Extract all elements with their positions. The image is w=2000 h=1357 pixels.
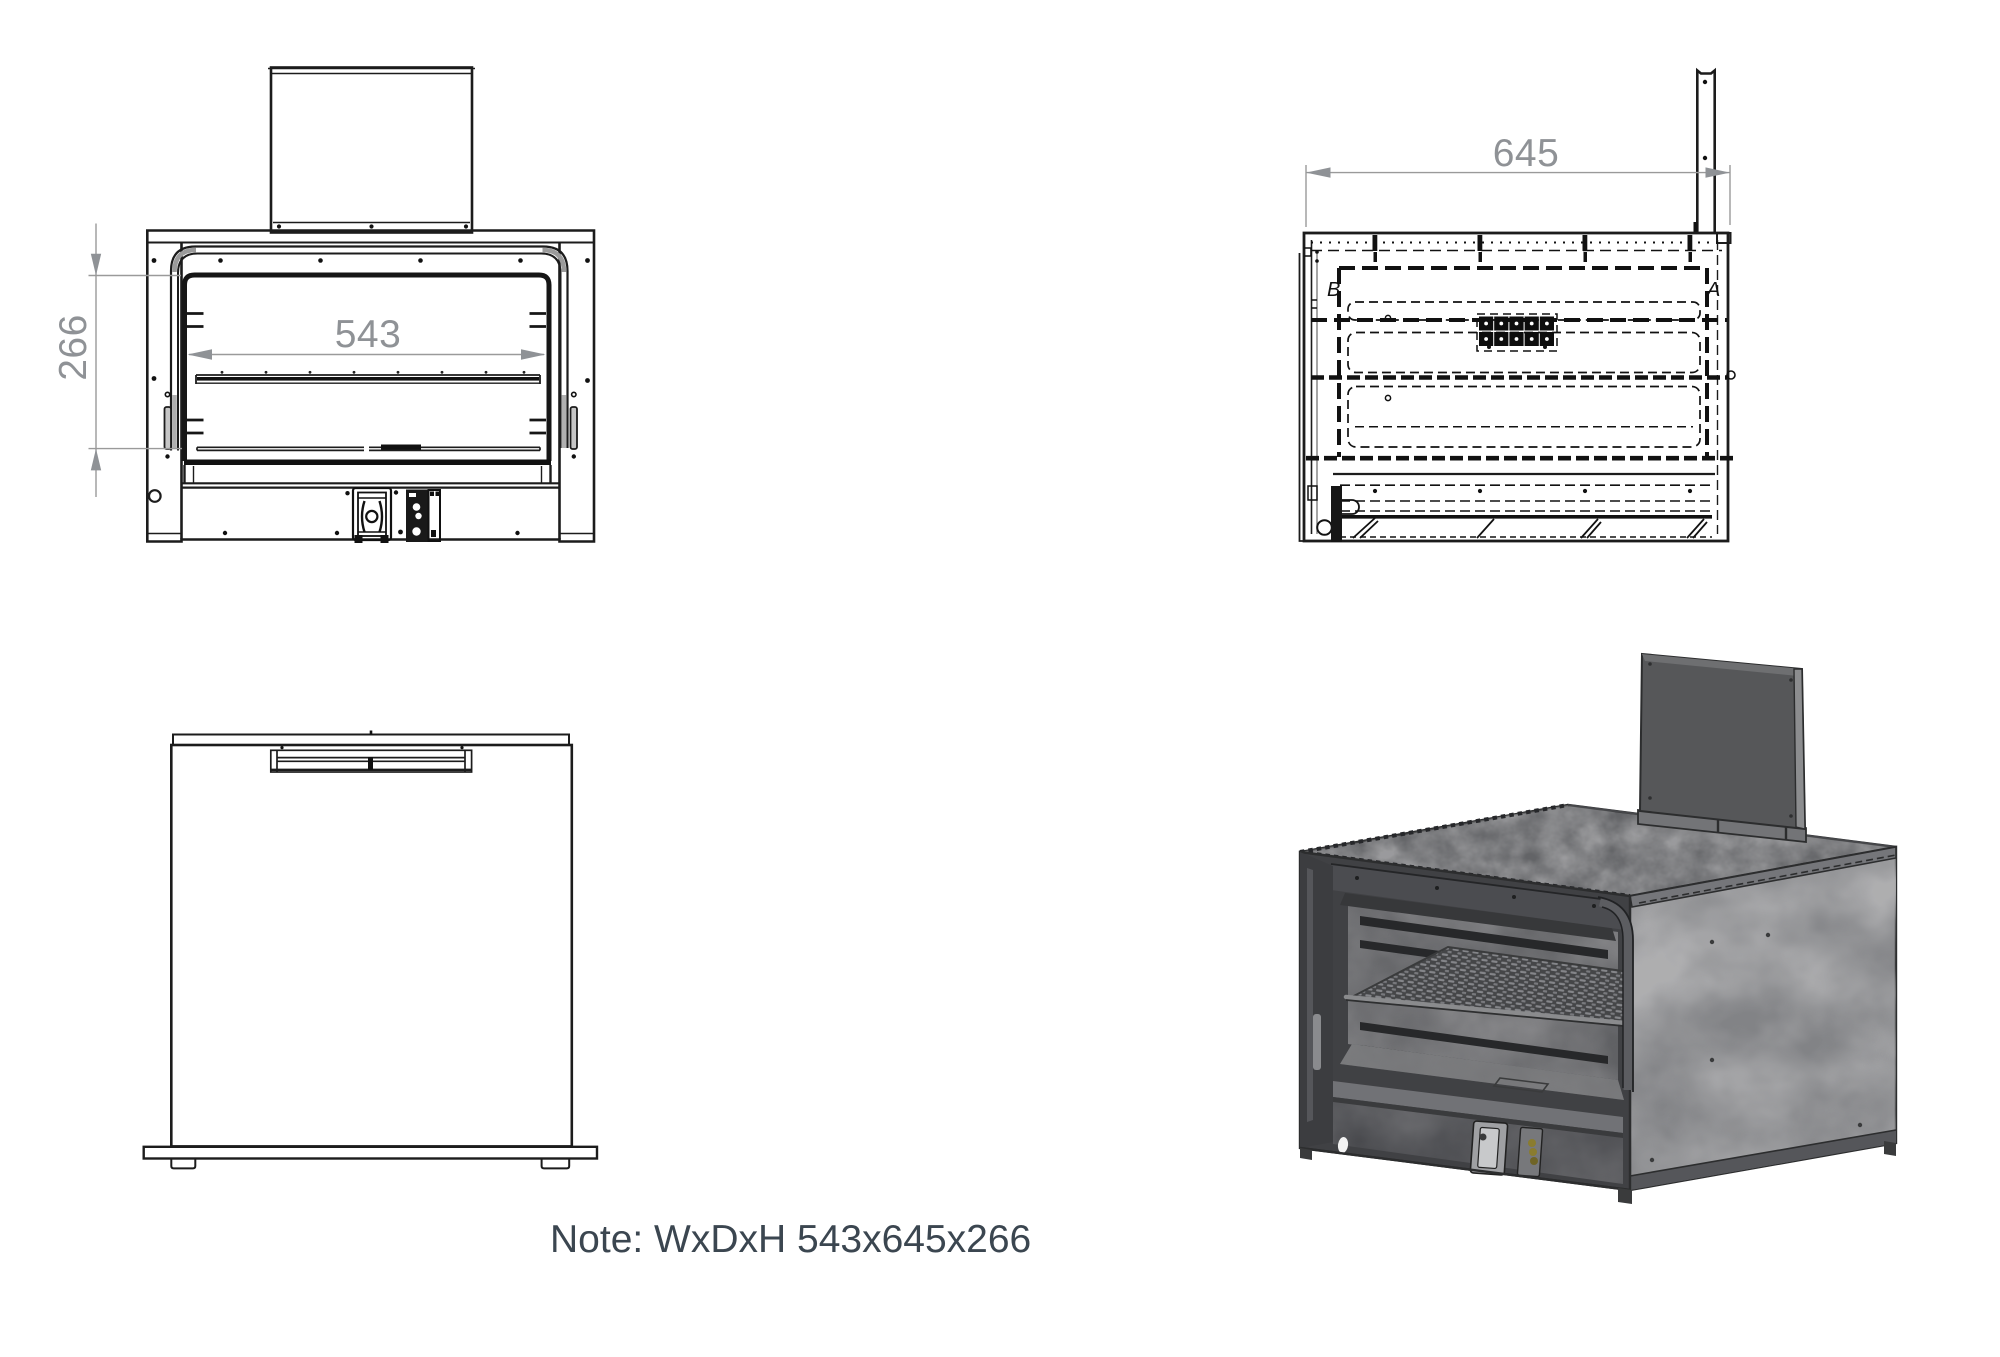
svg-text:645: 645: [1493, 132, 1560, 175]
svg-text:Note: WxDxH 543x645x266: Note: WxDxH 543x645x266: [550, 1218, 1031, 1261]
svg-text:266: 266: [52, 314, 95, 381]
svg-text:543: 543: [335, 313, 402, 356]
